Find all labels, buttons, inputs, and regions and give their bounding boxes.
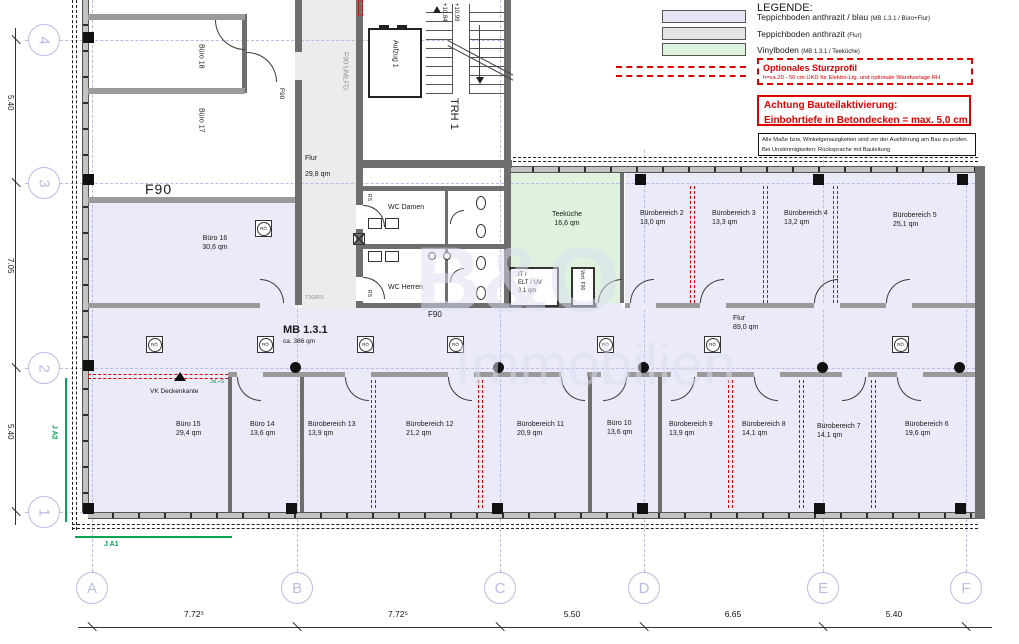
sturzprofil-bb2-bb3 bbox=[690, 186, 695, 303]
smoke-detector-icon: RÖ bbox=[447, 336, 464, 353]
toilet bbox=[476, 196, 486, 210]
room-label-bb6: Bürobereich 6 19,6 qm bbox=[905, 420, 949, 439]
sturzprofil-bb13-bb12 bbox=[371, 380, 376, 508]
room-area: 21,2 qm bbox=[406, 429, 453, 438]
sturzprofil-buero15-top bbox=[88, 374, 228, 379]
room-area: 13,2 qm bbox=[784, 218, 828, 227]
door-tag-rs: RS bbox=[365, 194, 372, 201]
facade-east bbox=[975, 166, 985, 519]
sturzprofil-bb3-bb4 bbox=[763, 186, 768, 303]
f90-big-label: F90 bbox=[145, 180, 172, 199]
ja2-line bbox=[65, 378, 67, 522]
dim-label-de: 6.65 bbox=[703, 609, 763, 619]
wall-trh-east bbox=[504, 0, 511, 308]
sink bbox=[368, 218, 382, 229]
room-name: Bürobereich 12 bbox=[406, 420, 453, 429]
corridor-umlfd-label: F90 UMLFD. bbox=[340, 52, 349, 92]
legend-item-note: (MB 1.3.1 / Teeküche) bbox=[801, 49, 860, 55]
grid-bubble-label: 3 bbox=[36, 179, 53, 187]
grid-bubble-label: F bbox=[961, 580, 970, 597]
room-area: 29,4 qm bbox=[176, 429, 201, 438]
grid-bubble-4: 4 bbox=[28, 24, 60, 56]
legend-item: Teppichboden anthrazit / blau (MB 1.3.1 … bbox=[757, 12, 930, 23]
room-name: Bürobereich 4 bbox=[784, 209, 828, 218]
sink bbox=[385, 218, 399, 229]
room-area: 13,3 qm bbox=[712, 218, 756, 227]
stairwell-label: TRH 1 bbox=[446, 98, 461, 130]
vk-label: VK Deckenkante bbox=[150, 388, 198, 397]
door-gap-wc-herren bbox=[356, 277, 363, 301]
toilet bbox=[476, 256, 486, 270]
zone-area: 89,0 qm bbox=[733, 323, 758, 332]
legend-swatch-carpet-gray bbox=[662, 27, 746, 40]
wall-partition-bb11-b10 bbox=[588, 377, 592, 512]
zone-area: 29,8 qm bbox=[305, 170, 330, 179]
room-label-bb5: Bürobereich 5 25,1 qm bbox=[893, 211, 937, 230]
column bbox=[83, 360, 94, 371]
sturzprofil-bb9-bb8 bbox=[728, 380, 733, 508]
jal-tag: Jal.+S bbox=[210, 379, 224, 386]
grid-bubble-2: 2 bbox=[28, 352, 60, 384]
zone-name: Flur bbox=[305, 154, 330, 163]
wall-corridor-west-upper bbox=[295, 0, 302, 52]
smoke-detector-icon: RÖ bbox=[357, 336, 374, 353]
wall-trh-south bbox=[356, 160, 512, 168]
zone-name: Flur bbox=[733, 314, 758, 323]
column bbox=[637, 503, 648, 514]
toilet bbox=[476, 224, 486, 238]
room-name: Büro 14 bbox=[250, 420, 275, 429]
grid-bubble-label: A bbox=[87, 580, 97, 597]
sink bbox=[385, 251, 399, 262]
room-name: Bürobereich 13 bbox=[308, 420, 355, 429]
vk-marker-icon bbox=[174, 372, 186, 381]
column bbox=[83, 32, 94, 43]
dim-tick bbox=[11, 507, 20, 516]
legend-item-label: Vinylboden bbox=[757, 45, 799, 55]
dimension-line-left bbox=[15, 28, 16, 525]
sturzprofil-title: Optionales Sturzprofil bbox=[763, 62, 971, 74]
legend-swatch-carpet-blue bbox=[662, 10, 746, 23]
room-label-bb4: Bürobereich 4 13,2 qm bbox=[784, 209, 828, 228]
legend-swatch-vinyl-green bbox=[662, 43, 746, 56]
room-name: Bürobereich 8 bbox=[742, 420, 786, 429]
room-label-teekueche: Teeküche 16,6 qm bbox=[538, 210, 596, 229]
legend-warning-box: Achtung Bauteilaktivierung: Einbohrtiefe… bbox=[757, 95, 971, 126]
room-label-buero18: Büro 18 bbox=[196, 44, 205, 69]
room-name: Bürobereich 2 bbox=[640, 209, 684, 218]
room-label-buero10: Büro 10 13,6 qm bbox=[607, 419, 632, 438]
sturzprofil-note: h=ca.20 - 50 cm UKD für Elektro-Ltg. und… bbox=[763, 75, 971, 83]
toilet bbox=[476, 286, 486, 300]
floor-top-right-wing bbox=[625, 173, 975, 308]
room-area: 16,6 qm bbox=[538, 219, 596, 228]
sturzprofil-bb8-bb7 bbox=[799, 380, 804, 508]
grid-bubble-1: 1 bbox=[28, 496, 60, 528]
wall-wc-stall-1 bbox=[445, 191, 448, 244]
sturzprofil-corridor-top bbox=[358, 0, 363, 16]
wall-corridor-west-lower bbox=[295, 80, 302, 305]
room-name: Teeküche bbox=[538, 210, 596, 219]
door-gap-buero18 bbox=[295, 52, 302, 80]
ro-label: RÖ bbox=[148, 338, 162, 352]
legend-item-note: (MB 1.3.1 / Büro+Flur) bbox=[870, 16, 930, 22]
mb-zone-label: MB 1.3.1 ca. 386 qm bbox=[283, 323, 328, 347]
round-column bbox=[817, 362, 828, 373]
site-boundary-left bbox=[72, 0, 77, 530]
facade-west bbox=[82, 0, 89, 512]
door-gap-wc-damen bbox=[356, 205, 363, 229]
legend-note-box: Alle Maße bzw. Winkelgenauigkeiten sind … bbox=[758, 133, 976, 156]
smoke-detector-icon: RÖ bbox=[257, 336, 274, 353]
dim-label-32: 7.05 bbox=[4, 258, 15, 274]
flur-horizontal-label: Flur 89,0 qm bbox=[733, 314, 758, 333]
column bbox=[814, 503, 825, 514]
room-area: 14,1 qm bbox=[742, 429, 786, 438]
grid-bubble-a: A bbox=[76, 572, 108, 604]
room-label-bb9: Bürobereich 9 13,9 qm bbox=[669, 420, 713, 439]
smoke-detector-icon: RÖ bbox=[892, 336, 909, 353]
ro-label: RÖ bbox=[257, 222, 271, 236]
door-arc-wc-stall-1 bbox=[450, 210, 464, 224]
round-column bbox=[493, 362, 504, 373]
f90-door-label: F90 bbox=[276, 88, 285, 99]
grid-bubble-label: D bbox=[639, 580, 650, 597]
gridline-col-a bbox=[92, 0, 93, 572]
elevator-door-mark bbox=[397, 25, 407, 30]
dim-label-43: 5.40 bbox=[4, 95, 15, 111]
zone-name: MB 1.3.1 bbox=[283, 323, 328, 338]
stair-arrow-down-icon bbox=[476, 77, 484, 84]
room-label-buero14: Büro 14 13,6 qm bbox=[250, 420, 275, 439]
facade-north-right-wing bbox=[508, 166, 975, 173]
legend-item: Vinylboden (MB 1.3.1 / Teeküche) bbox=[757, 45, 860, 56]
wc-herren-label: WC Herren bbox=[388, 283, 423, 292]
room-label-buero17: Büro 17 bbox=[196, 108, 205, 133]
legend-item-label: Teppichboden anthrazit / blau bbox=[757, 12, 868, 22]
room-area: 30,6 qm bbox=[180, 243, 250, 252]
room-area: 13,6 qm bbox=[250, 429, 275, 438]
room-label-bb7: Bürobereich 7 14,1 qm bbox=[817, 422, 861, 441]
round-column bbox=[954, 362, 965, 373]
ja1-line bbox=[75, 536, 232, 538]
room-name: Bürobereich 6 bbox=[905, 420, 949, 429]
door-tag-rs: RS bbox=[365, 290, 372, 297]
sturzprofil-bb12-bb11 bbox=[478, 380, 483, 508]
door-gap-bb5 bbox=[886, 303, 912, 308]
dim-tick bbox=[11, 363, 20, 372]
room-label-bb13: Bürobereich 13 13,9 qm bbox=[308, 420, 355, 439]
legend-item: Teppichboden anthrazit (Flur) bbox=[757, 29, 862, 40]
dim-label-cd: 5.50 bbox=[542, 609, 602, 619]
door-gap-teekueche bbox=[597, 303, 622, 308]
wall-buero18-17-divider bbox=[88, 88, 245, 94]
dim-label-ab: 7.72⁵ bbox=[164, 609, 224, 619]
legend-swatch-sturzprofil bbox=[616, 75, 746, 77]
column bbox=[83, 503, 94, 514]
sink bbox=[368, 251, 382, 262]
stair-arrow-line bbox=[479, 25, 480, 77]
door-tag-t30: T30/RS bbox=[305, 295, 324, 302]
note-line2: Bei Unstimmigkeiten: Rücksprache mit Bau… bbox=[762, 147, 975, 155]
dimension-line-bottom bbox=[78, 627, 992, 628]
column bbox=[813, 174, 824, 185]
room-name: Bürobereich 5 bbox=[893, 211, 937, 220]
grid-bubble-label: 2 bbox=[36, 364, 53, 372]
door-arc-buero18 bbox=[247, 52, 277, 82]
ro-label: RÖ bbox=[599, 338, 613, 352]
note-line1: Alle Maße bzw. Winkelgenauigkeiten sind … bbox=[762, 137, 975, 145]
room-name: Büro 16 bbox=[180, 234, 250, 243]
room-label-buero16: Büro 16 30,6 qm bbox=[180, 234, 250, 253]
grid-bubble-label: C bbox=[495, 580, 506, 597]
legend-item-note: (Flur) bbox=[847, 33, 861, 39]
room-area: 13,9 qm bbox=[669, 429, 713, 438]
legend-sturzprofil-box: Optionales Sturzprofil h=ca.20 - 50 cm U… bbox=[757, 58, 973, 85]
room-area: 25,1 qm bbox=[893, 220, 937, 229]
zone-name: IT / bbox=[518, 271, 542, 279]
site-boundary-top-right bbox=[508, 157, 978, 162]
grid-bubble-d: D bbox=[628, 572, 660, 604]
level-label-upper: +10,99 bbox=[452, 3, 460, 22]
shaft-x-icon bbox=[353, 233, 365, 245]
room-label-bb12: Bürobereich 12 21,2 qm bbox=[406, 420, 453, 439]
grid-bubble-b: B bbox=[281, 572, 313, 604]
grid-bubble-c: C bbox=[484, 572, 516, 604]
legend-swatch-sturzprofil bbox=[616, 66, 746, 68]
column bbox=[83, 174, 94, 185]
wall-partition-b14-bb13 bbox=[300, 377, 304, 512]
smoke-detector-icon: RÖ bbox=[255, 220, 272, 237]
floor-corridor-band bbox=[88, 308, 975, 372]
smoke-detector-icon: RÖ bbox=[597, 336, 614, 353]
ro-label: RÖ bbox=[359, 338, 373, 352]
smoke-detector-icon: RÖ bbox=[704, 336, 721, 353]
room-area: 14,1 qm bbox=[817, 431, 861, 440]
grid-bubble-e: E bbox=[807, 572, 839, 604]
wall-wc-north bbox=[363, 186, 504, 191]
wall-partition-b10-bb9 bbox=[658, 377, 662, 512]
column bbox=[957, 174, 968, 185]
room-name: Bürobereich 9 bbox=[669, 420, 713, 429]
ro-label: RÖ bbox=[449, 338, 463, 352]
room-area: 13,0 qm bbox=[640, 218, 684, 227]
grid-bubble-label: 4 bbox=[36, 36, 53, 44]
warning-line1: Achtung Bauteilaktivierung: bbox=[764, 99, 969, 113]
sturzprofil-bb7-bb6 bbox=[871, 380, 876, 508]
room-area: 19,6 qm bbox=[905, 429, 949, 438]
site-boundary-bottom bbox=[72, 524, 978, 529]
room-label-bb8: Bürobereich 8 14,1 qm bbox=[742, 420, 786, 439]
room-name: Bürobereich 7 bbox=[817, 422, 861, 431]
gridline-col-f bbox=[966, 150, 967, 572]
level-label-lower: +10,84 bbox=[440, 3, 448, 22]
ro-label: RÖ bbox=[894, 338, 908, 352]
door-gap-bb3 bbox=[700, 303, 726, 308]
flur-vertical-label: Flur 29,8 qm bbox=[305, 154, 330, 180]
dim-tick bbox=[11, 178, 20, 187]
wc-damen-label: WC Damen bbox=[388, 203, 424, 212]
dim-label-bc: 7.72⁵ bbox=[368, 609, 428, 619]
room-name: Büro 15 bbox=[176, 420, 201, 429]
shaft-label: Vert. F90 bbox=[578, 270, 585, 290]
room-name: Bürobereich 11 bbox=[517, 420, 564, 429]
ja1-label: J A1 bbox=[104, 540, 119, 549]
wall-buero16-south bbox=[88, 303, 260, 308]
grid-bubble-label: B bbox=[292, 580, 302, 597]
wall-offices-top-south bbox=[625, 303, 975, 308]
legend-item-label: Teppichboden anthrazit bbox=[757, 29, 845, 39]
room-label-bb11: Bürobereich 11 20,9 qm bbox=[517, 420, 564, 439]
zone-area: ca. 386 qm bbox=[283, 338, 328, 347]
room-label-bb3: Bürobereich 3 13,3 qm bbox=[712, 209, 756, 228]
room-label-buero15: Büro 15 29,4 qm bbox=[176, 420, 201, 439]
it-room-label: IT / ELT / UV 3,1 qm bbox=[518, 271, 542, 295]
room-area: 13,6 qm bbox=[607, 428, 632, 437]
facade-south bbox=[88, 512, 975, 519]
column bbox=[635, 174, 646, 185]
room-area: 20,9 qm bbox=[517, 429, 564, 438]
elevator-label: Aufzug 1 bbox=[390, 40, 399, 68]
dim-label-ef: 5.40 bbox=[864, 609, 924, 619]
room-area: 13,9 qm bbox=[308, 429, 355, 438]
f90-mid-label: F90 bbox=[428, 310, 442, 321]
wall-wc-south bbox=[363, 303, 504, 308]
warning-line2: Einbohrtiefe in Betondecken = max. 5,0 c… bbox=[764, 114, 969, 128]
wall-partition-b15-b14 bbox=[228, 377, 232, 512]
ro-label: RÖ bbox=[706, 338, 720, 352]
round-column bbox=[290, 362, 301, 373]
wall-wc-divider bbox=[363, 244, 504, 249]
ja2-label: J A2 bbox=[49, 425, 58, 440]
wall-corridor-east bbox=[356, 0, 363, 308]
zone-name: ELT / UV bbox=[518, 279, 542, 287]
column bbox=[955, 503, 966, 514]
round-column bbox=[638, 362, 649, 373]
column bbox=[492, 503, 503, 514]
door-gap-bb4 bbox=[814, 303, 840, 308]
floor-plan-drawing: RÖ RÖ RÖ RÖ RÖ RÖ RÖ RÖ J A2 J A1 Jal.+S… bbox=[0, 0, 1019, 644]
smoke-detector-icon: RÖ bbox=[146, 336, 163, 353]
dim-tick bbox=[11, 35, 20, 44]
ro-label: RÖ bbox=[259, 338, 273, 352]
grid-bubble-label: E bbox=[818, 580, 828, 597]
room-name: Büro 10 bbox=[607, 419, 632, 428]
urinal bbox=[443, 252, 451, 260]
door-arc-topwall bbox=[215, 20, 245, 50]
zone-area: 3,1 qm bbox=[518, 287, 542, 295]
column bbox=[286, 503, 297, 514]
grid-bubble-3: 3 bbox=[28, 167, 60, 199]
urinal bbox=[428, 252, 436, 260]
wall-buero16-north bbox=[88, 197, 295, 203]
dim-label-21: 5.40 bbox=[4, 424, 15, 440]
door-gap-bb2 bbox=[630, 303, 656, 308]
grid-bubble-label: 1 bbox=[36, 508, 53, 516]
room-name: Bürobereich 3 bbox=[712, 209, 756, 218]
grid-bubble-f: F bbox=[950, 572, 982, 604]
room-label-bb2: Bürobereich 2 13,0 qm bbox=[640, 209, 684, 228]
elevator-door-mark bbox=[379, 25, 389, 30]
door-arc-wc-stall-2 bbox=[450, 268, 464, 282]
